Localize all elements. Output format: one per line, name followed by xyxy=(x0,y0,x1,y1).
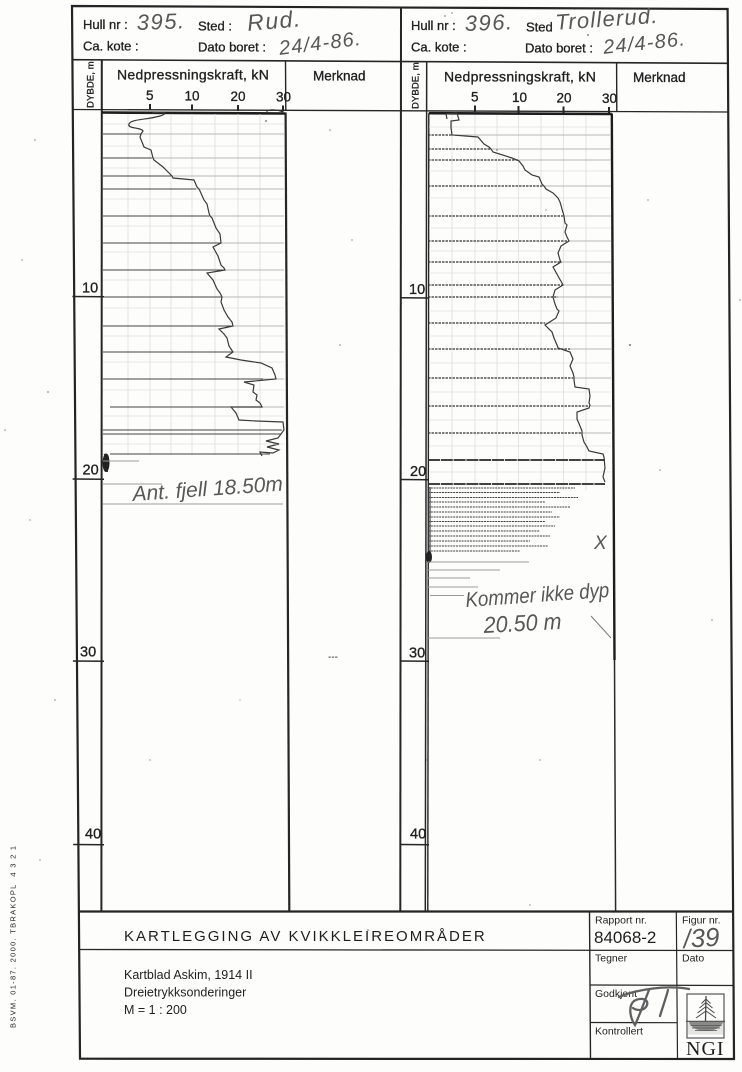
svg-text:395.: 395. xyxy=(136,8,186,35)
svg-text:DYBDE, m: DYBDE, m xyxy=(86,61,97,108)
svg-text:---: --- xyxy=(328,652,338,663)
svg-text:10: 10 xyxy=(185,89,200,104)
svg-text:10: 10 xyxy=(512,90,527,105)
svg-text:5: 5 xyxy=(471,90,479,105)
svg-text:396.: 396. xyxy=(464,9,514,36)
svg-text:Merknad: Merknad xyxy=(633,70,686,85)
svg-text:BSVM. 01-87. 2000. TBRAKOPL 4: BSVM. 01-87. 2000. TBRAKOPL 4 3 2 1 xyxy=(9,845,18,1028)
svg-text:30: 30 xyxy=(602,91,617,106)
svg-text:20: 20 xyxy=(83,463,99,479)
svg-text:84068-2: 84068-2 xyxy=(594,928,656,947)
svg-text:5: 5 xyxy=(146,88,154,103)
svg-text:Kontrollert: Kontrollert xyxy=(595,1026,643,1038)
svg-text:Dato: Dato xyxy=(682,953,704,965)
svg-text:Sted: Sted xyxy=(526,20,553,35)
svg-text:/39: /39 xyxy=(680,922,720,955)
svg-text:30: 30 xyxy=(409,646,425,662)
svg-text:Ca. kote :: Ca. kote : xyxy=(411,40,467,55)
svg-text:20: 20 xyxy=(231,89,246,104)
svg-text:Nedpressningskraft, kN: Nedpressningskraft, kN xyxy=(117,67,269,83)
svg-text:Hull nr :: Hull nr : xyxy=(83,17,128,32)
svg-text:40: 40 xyxy=(85,827,101,843)
svg-text:20.50 m: 20.50 m xyxy=(482,608,562,638)
svg-text:NGI: NGI xyxy=(686,1038,725,1060)
svg-text:X: X xyxy=(593,533,608,554)
svg-text:Nedpressningskraft, kN: Nedpressningskraft, kN xyxy=(444,69,596,85)
svg-text:DYBDE, m: DYBDE, m xyxy=(411,62,422,109)
svg-text:Kartblad Askim, 1914 II: Kartblad Askim, 1914 II xyxy=(124,968,253,982)
svg-text:10: 10 xyxy=(409,282,425,298)
svg-text:30: 30 xyxy=(276,90,291,105)
svg-text:M = 1 : 200: M = 1 : 200 xyxy=(124,1003,187,1017)
svg-text:30: 30 xyxy=(80,645,96,661)
svg-text:20: 20 xyxy=(557,91,572,106)
svg-text:Ca. kote :: Ca. kote : xyxy=(83,39,139,54)
svg-text:Rud.: Rud. xyxy=(246,5,303,36)
svg-text:40: 40 xyxy=(410,827,426,843)
svg-text:Tegner: Tegner xyxy=(595,953,628,965)
svg-text:Hull nr :: Hull nr : xyxy=(411,18,456,33)
svg-text:10: 10 xyxy=(82,281,98,297)
svg-text:Dato boret :: Dato boret : xyxy=(525,41,593,56)
svg-text:Rapport nr.: Rapport nr. xyxy=(595,915,647,927)
svg-text:Dato boret :: Dato boret : xyxy=(198,40,266,55)
svg-text:KARTLEGGING AV KVIKKLEIREOMRÅD: KARTLEGGING AV KVIKKLEIREOMRÅDER xyxy=(124,928,487,945)
svg-text:Merknad: Merknad xyxy=(313,69,366,84)
svg-text:Sted :: Sted : xyxy=(198,19,232,34)
svg-text:20: 20 xyxy=(410,464,426,480)
svg-text:Dreietrykksonderinger: Dreietrykksonderinger xyxy=(124,986,246,1000)
